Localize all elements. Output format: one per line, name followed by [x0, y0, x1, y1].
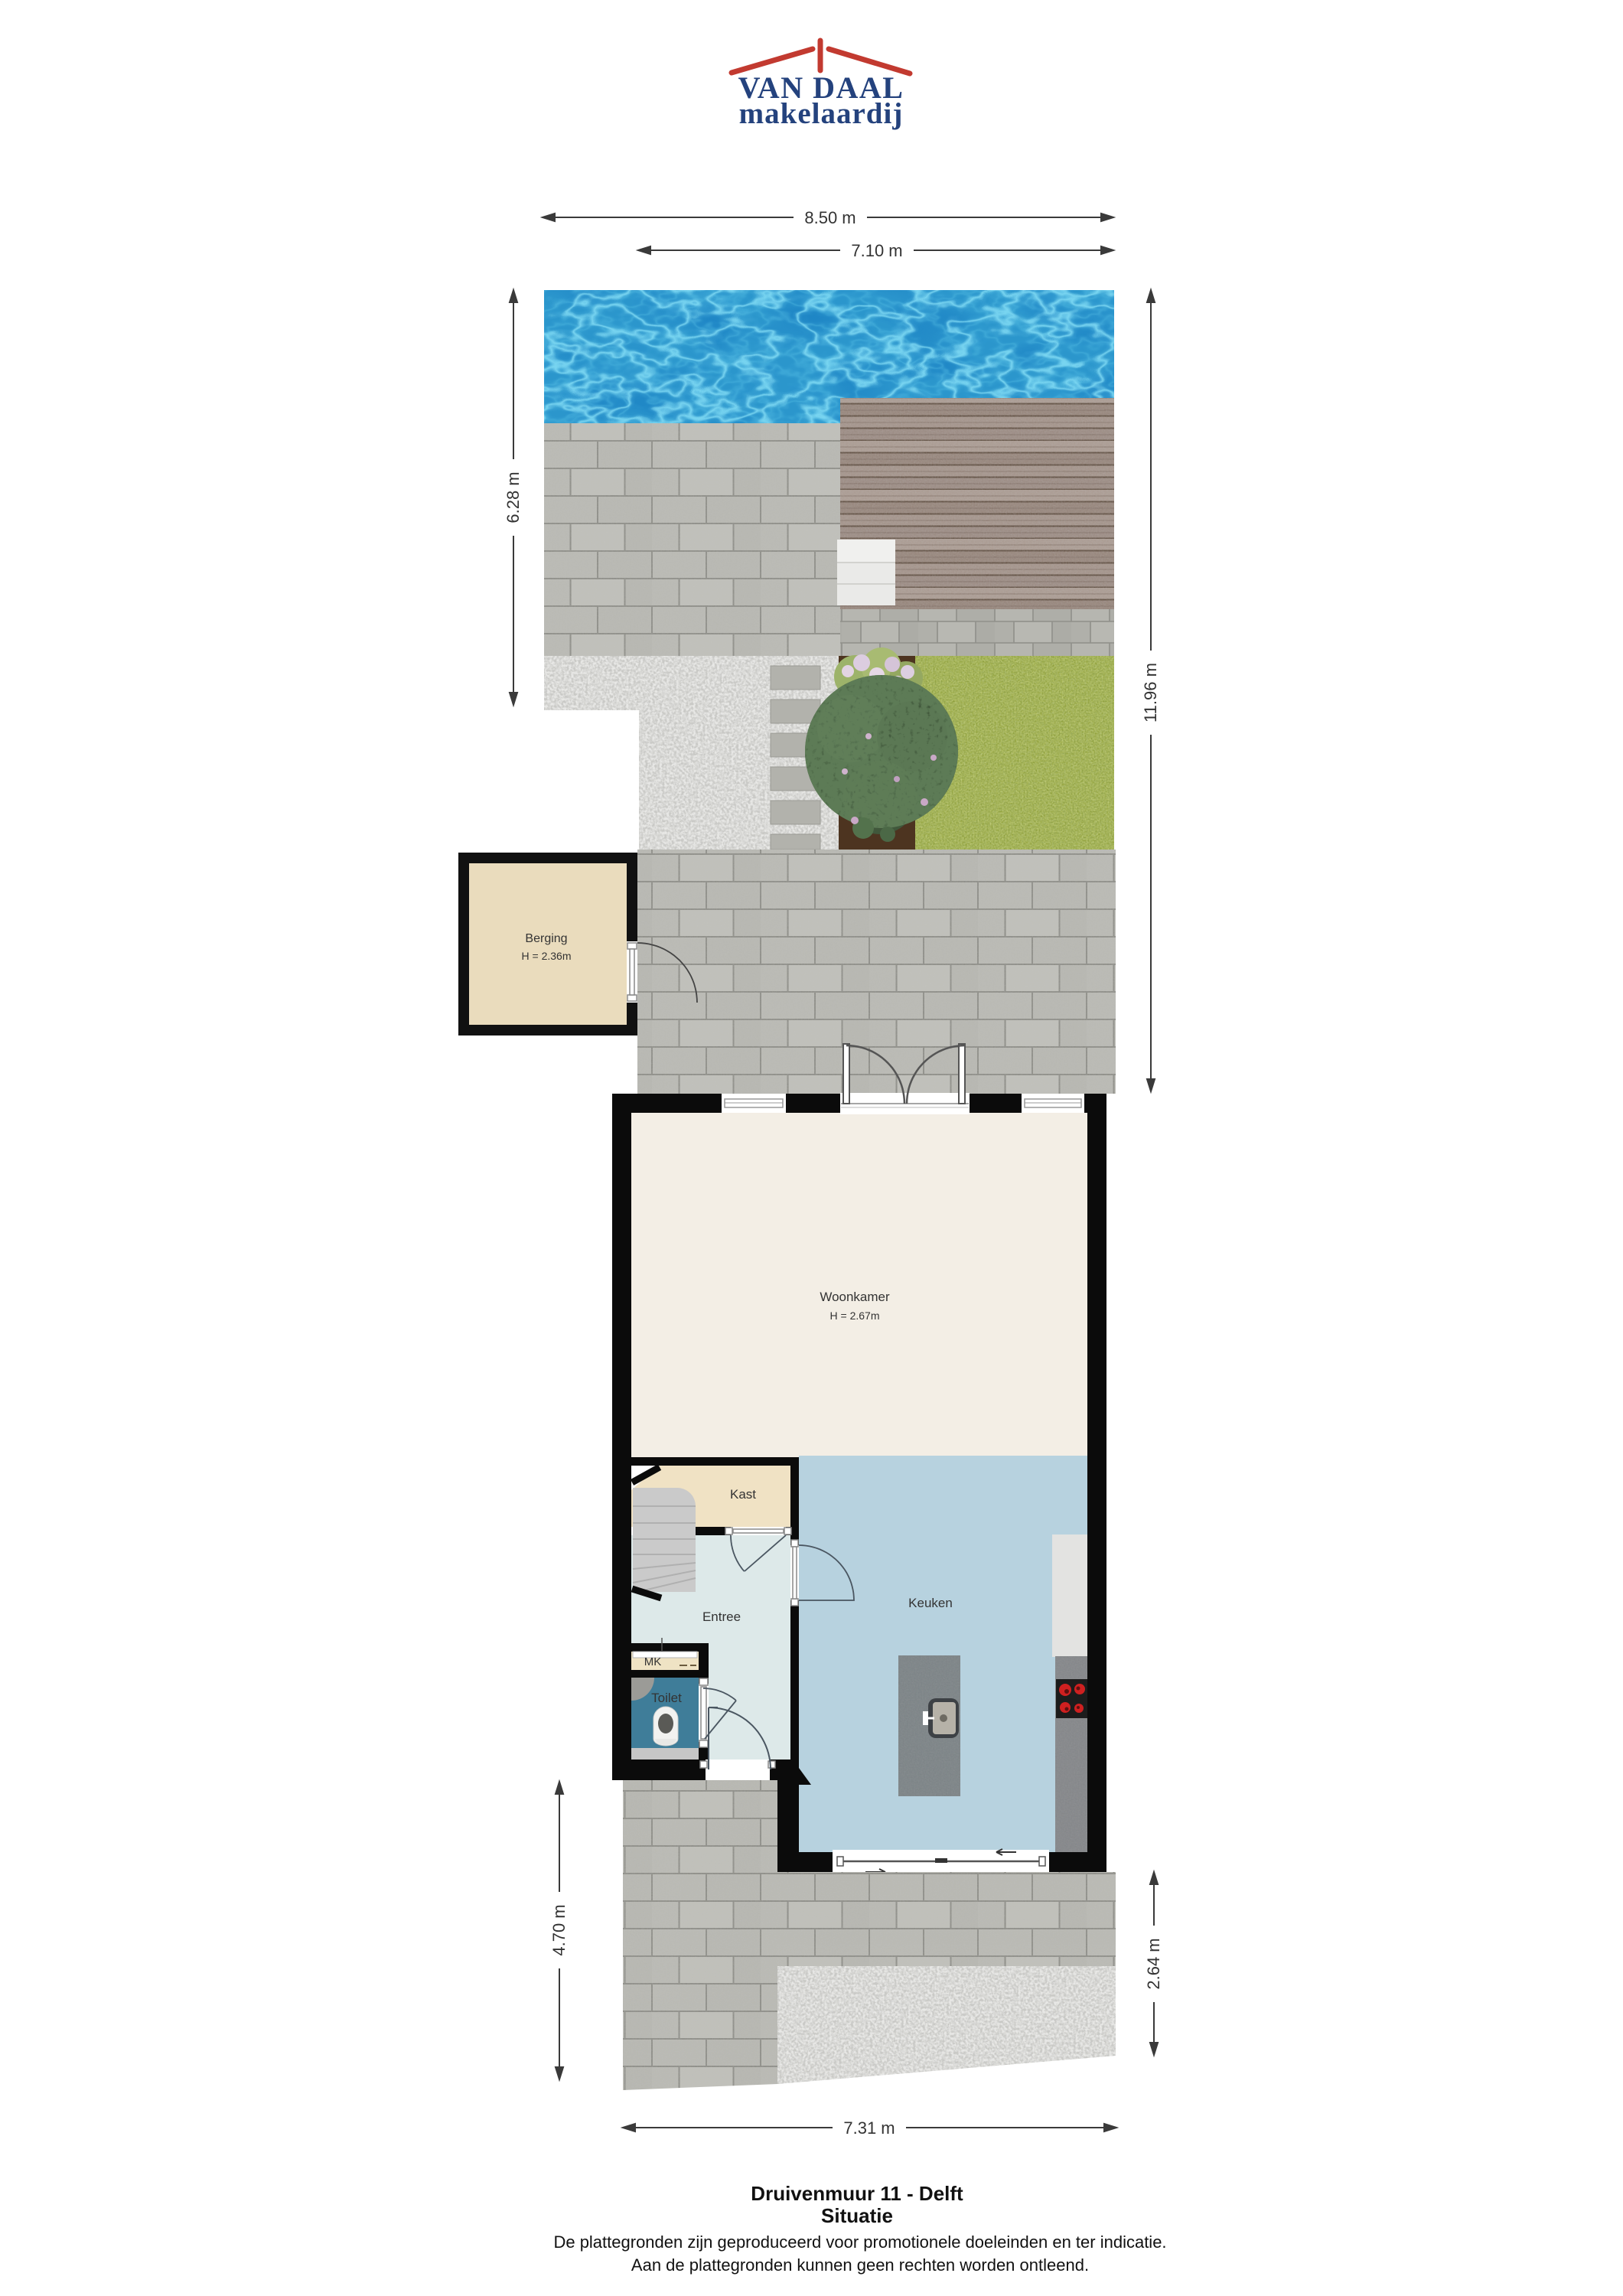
svg-text:Aan de plattegronden kunnen ge: Aan de plattegronden kunnen geen rechten…: [631, 2255, 1089, 2275]
svg-text:Druivenmuur 11 - Delft: Druivenmuur 11 - Delft: [751, 2182, 963, 2205]
svg-text:Keuken: Keuken: [908, 1596, 953, 1610]
svg-text:8.50 m: 8.50 m: [804, 208, 855, 227]
svg-text:H = 2.67m: H = 2.67m: [830, 1309, 880, 1322]
svg-text:MK: MK: [644, 1655, 662, 1668]
svg-text:Berging: Berging: [525, 932, 567, 945]
svg-text:7.10 m: 7.10 m: [851, 241, 902, 260]
svg-text:De plattegronden zijn geproduc: De plattegronden zijn geproduceerd voor …: [553, 2232, 1166, 2252]
svg-text:7.31 m: 7.31 m: [843, 2118, 895, 2138]
svg-text:makelaardij: makelaardij: [739, 97, 904, 130]
svg-text:11.96 m: 11.96 m: [1141, 663, 1160, 722]
svg-text:4.70 m: 4.70 m: [549, 1904, 569, 1955]
svg-text:Toilet: Toilet: [651, 1691, 682, 1705]
svg-text:2.64 m: 2.64 m: [1144, 1938, 1163, 1989]
svg-text:Kast: Kast: [730, 1487, 756, 1502]
svg-text:Entree: Entree: [702, 1609, 741, 1624]
svg-text:Situatie: Situatie: [821, 2204, 893, 2227]
svg-text:H = 2.36m: H = 2.36m: [522, 950, 572, 962]
svg-text:Woonkamer: Woonkamer: [820, 1290, 890, 1304]
svg-text:6.28 m: 6.28 m: [504, 471, 523, 523]
